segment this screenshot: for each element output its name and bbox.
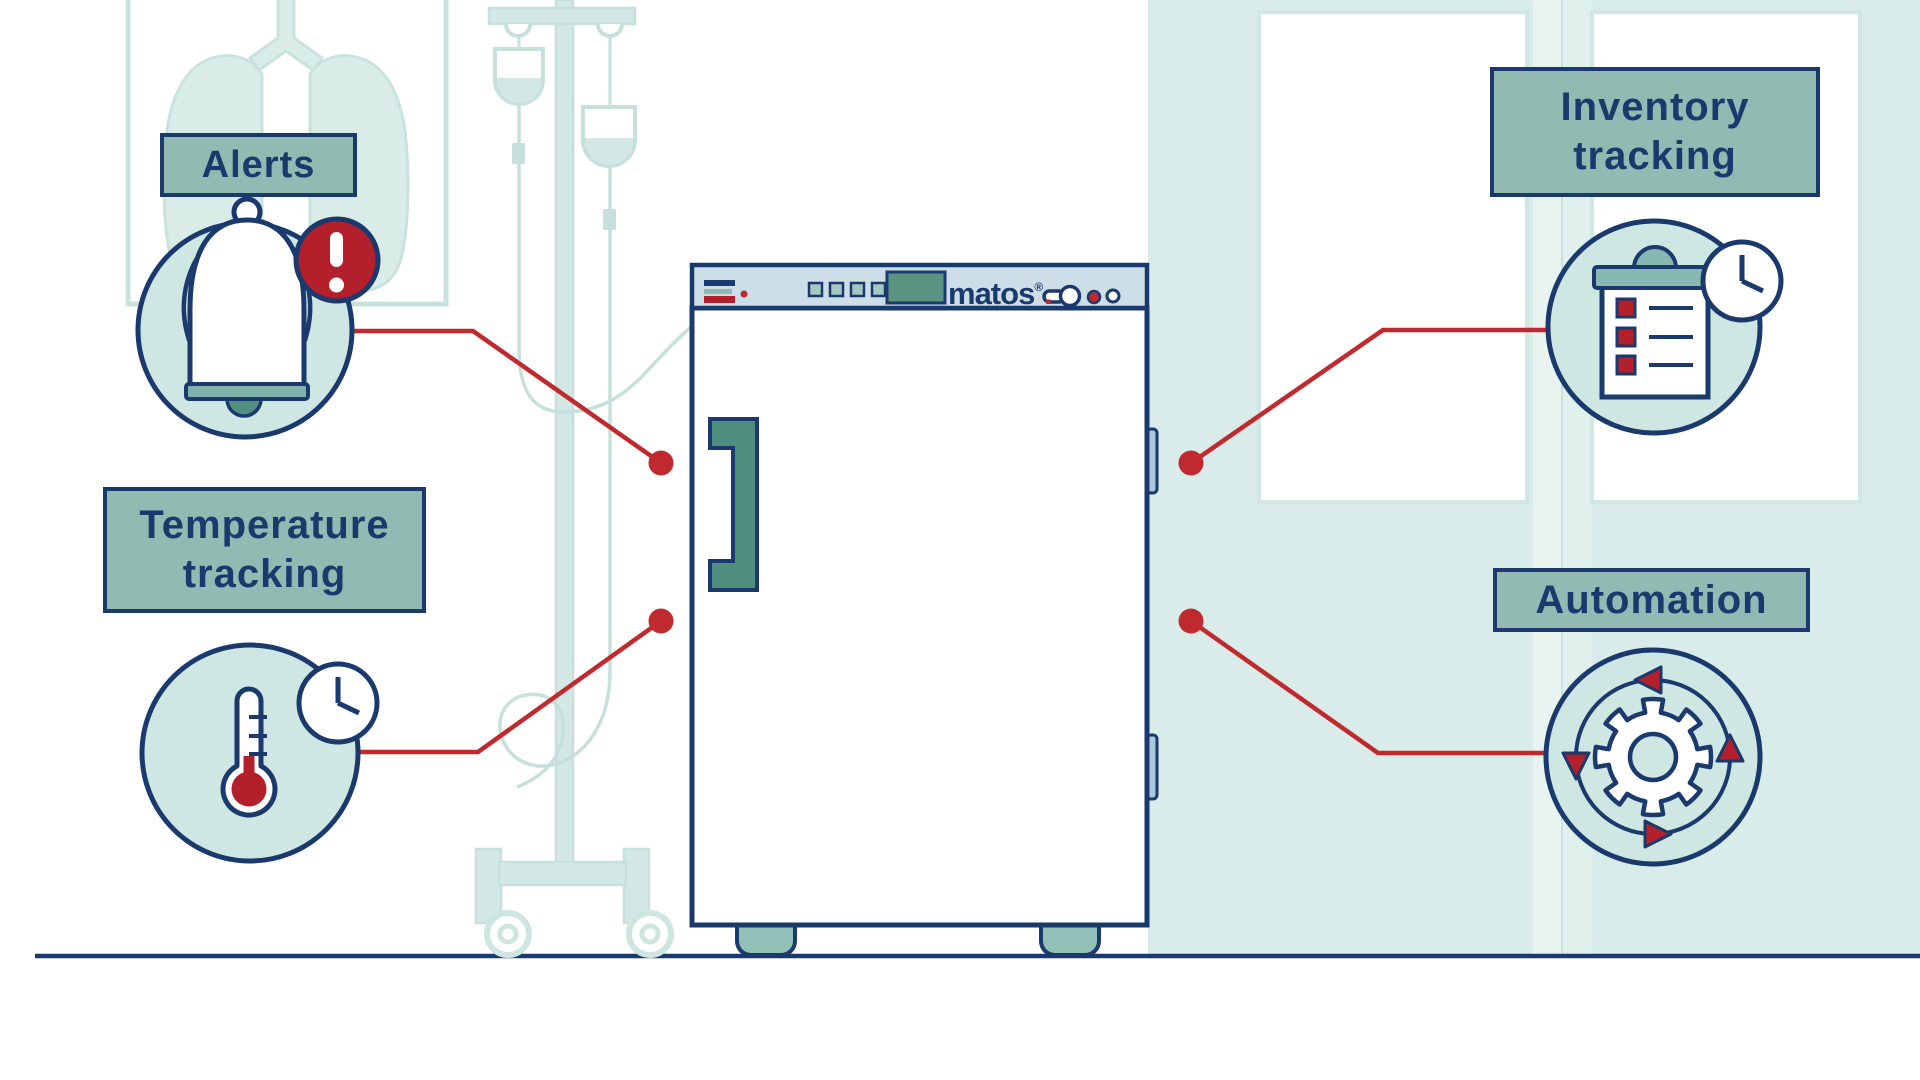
iv-bag-icon <box>583 107 635 166</box>
matos-logo: matos®. <box>948 269 1052 305</box>
iv-bag-icon <box>495 49 543 104</box>
iv-clamp <box>512 143 525 164</box>
fridge-foot <box>1041 925 1099 955</box>
label-inventory-line2: tracking <box>1573 132 1737 181</box>
iv-clamp <box>603 209 616 230</box>
label-temperature-line2: tracking <box>183 550 347 599</box>
checklist-squares <box>1617 299 1635 374</box>
infographic-canvas: Alerts Temperature tracking Inventory tr… <box>0 0 1920 1080</box>
clock-icon <box>299 664 377 742</box>
door-panel-left <box>1259 12 1527 502</box>
fridge-foot <box>737 925 795 955</box>
brand-text: matos <box>948 276 1034 311</box>
fridge-door <box>692 308 1147 925</box>
registered-mark: ® <box>1034 280 1043 294</box>
display-icon <box>887 272 945 303</box>
label-inventory-tracking: Inventory tracking <box>1490 67 1820 197</box>
brand-dot: . <box>1044 276 1052 311</box>
gear-icon <box>1546 650 1760 864</box>
iv-stand-illustration <box>476 0 692 955</box>
label-inventory-line1: Inventory <box>1560 83 1749 132</box>
label-alerts-text: Alerts <box>202 142 316 188</box>
fridge-illustration <box>692 265 1157 955</box>
label-alerts: Alerts <box>160 133 357 197</box>
clock-icon <box>1703 242 1781 320</box>
alert-badge-icon <box>296 219 378 301</box>
thermometer-icon <box>142 645 377 861</box>
label-automation-text: Automation <box>1535 576 1767 625</box>
label-temperature-line1: Temperature <box>139 501 389 550</box>
bell-clapper <box>227 399 261 416</box>
label-automation: Automation <box>1493 568 1810 632</box>
label-temperature-tracking: Temperature tracking <box>103 487 426 613</box>
